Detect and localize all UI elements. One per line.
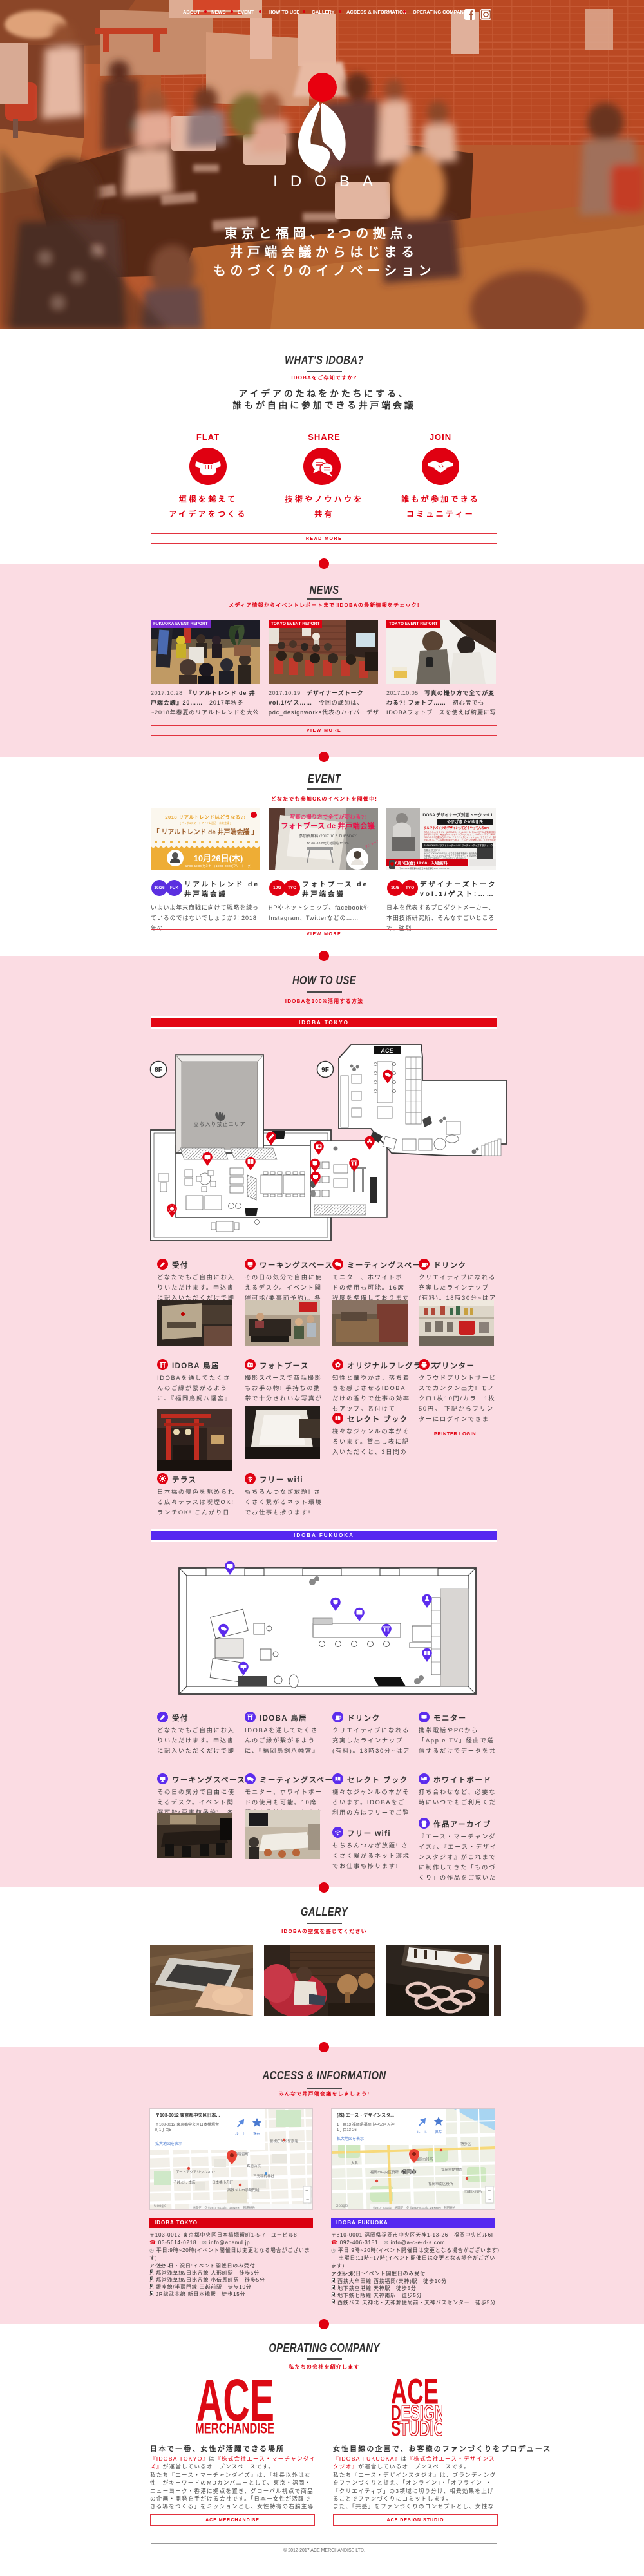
- svg-text:RADWORKS/イラストレーター/ACE マーチャンダイズ: RADWORKS/イラストレーター/ACE マーチャンダイズ本部ディレクター: [424, 844, 496, 847]
- svg-text:1丁目13 福岡県福岡市中央区天神: 1丁目13 福岡県福岡市中央区天神: [337, 2122, 395, 2127]
- svg-text:S: S: [391, 2417, 401, 2437]
- svg-text:西铁メトロ手蔵門綫: 西铁メトロ手蔵門綫: [227, 2188, 260, 2193]
- svg-text:TUDIO: TUDIO: [400, 2417, 442, 2437]
- svg-text:IDOBA デザイナーズ対談トーク vol.1: IDOBA デザイナーズ対談トーク vol.1: [422, 812, 493, 817]
- svg-text:三光稲荷神社: 三光稲荷神社: [253, 2173, 275, 2179]
- svg-text:やまされる、そんな彼の経験から道 ス・ヒんがTCVR途れされ: やまされる、そんな彼の経験から道 ス・ヒんがTCVR途れされこちゃかもの提返など…: [424, 838, 496, 841]
- svg-text:福岡市南区役所: 福岡市南区役所: [428, 2181, 453, 2186]
- svg-text:1丁目13-26: 1丁目13-26: [337, 2128, 357, 2132]
- svg-text:9F: 9F: [321, 1067, 329, 1074]
- svg-text:フォトブース de 井戸端会議: フォトブース de 井戸端会議: [281, 821, 375, 830]
- svg-text:「 リアルトレンド de 井戸端会議 」: 「 リアルトレンド de 井戸端会議 」: [153, 828, 258, 836]
- svg-text:福岡市動物園: 福岡市動物園: [441, 2167, 463, 2172]
- svg-text:地図データ ©2017 Google、ZENRIN 利用規約: 地図データ ©2017 Google、ZENRIN 利用規約: [193, 2206, 255, 2210]
- svg-text:Google: Google: [154, 2204, 167, 2208]
- svg-text:岩藤 武 氏(漫才手: 岩藤 武 氏(漫才手: [424, 848, 440, 852]
- svg-text:MERCHANDISE: MERCHANDISE: [195, 2420, 274, 2436]
- svg-text:立ち入り禁止エリア: 立ち入り禁止エリア: [194, 1121, 246, 1127]
- svg-text:やまざき たかゆき氏: やまざき たかゆき氏: [447, 819, 483, 825]
- svg-text:+: +: [305, 2188, 308, 2194]
- svg-text:〒103-0012 東京都中央区日本...: 〒103-0012 東京都中央区日本...: [155, 2112, 220, 2118]
- svg-text:( パッグ&スマートアイテム週辺・未来会議 ): ( パッグ&スマートアイテム週辺・未来会議 ): [180, 821, 231, 825]
- svg-text:ACE: ACE: [380, 1047, 393, 1054]
- svg-text:拡大地図を表示: 拡大地図を表示: [155, 2141, 182, 2146]
- svg-text:写真の撮り方で全てが変わる?!: 写真の撮り方で全てが変わる?!: [290, 814, 366, 820]
- svg-text:2018 リアルトレンドはどうなる?!: 2018 リアルトレンドはどうなる?!: [165, 814, 245, 820]
- svg-text:+: +: [488, 2188, 491, 2194]
- svg-text:拡大地図を表示: 拡大地図を表示: [337, 2136, 364, 2141]
- svg-text:ルート: ルート: [235, 2132, 246, 2136]
- svg-text:Google: Google: [336, 2204, 348, 2208]
- svg-text:保存: 保存: [253, 2131, 261, 2136]
- svg-text:日本橋小舟町: 日本橋小舟町: [212, 2180, 234, 2185]
- svg-text:−: −: [306, 2196, 309, 2202]
- svg-text:8F: 8F: [155, 1067, 162, 1074]
- svg-text:ルート: ルート: [417, 2131, 428, 2135]
- svg-text:10月6日(金) 19:00~ 入場無料: 10月6日(金) 19:00~ 入場無料: [393, 860, 448, 866]
- svg-text:−: −: [488, 2196, 491, 2202]
- svg-text:©2017 Google・地図データ ©2017 Googl: ©2017 Google・地図データ ©2017 Google, ZENRIN …: [373, 2206, 456, 2210]
- svg-text:福岡市: 福岡市: [401, 2168, 417, 2175]
- svg-text:10月26日(木): 10月26日(木): [194, 854, 243, 863]
- svg-text:(株) エース・デザインスタ...: (株) エース・デザインスタ...: [337, 2112, 394, 2118]
- svg-text:大名: 大名: [351, 2161, 358, 2166]
- svg-text:クルマやバイクのデザインってどうやってんの8??: クルマやバイクのデザインってどうやってんの8??: [424, 826, 489, 830]
- svg-text:〒103-0012 東京都中央区日本橋堀留町 1-5-7 Y: 〒103-0012 東京都中央区日本橋堀留町 1-5-7 YOU ICL 8F: [399, 866, 450, 870]
- svg-text:市南区役所: 市南区役所: [464, 2189, 482, 2194]
- svg-text:アートアクアリウム2017: アートアクアリウム2017: [176, 2170, 215, 2175]
- svg-text:玄冶店浜: 玄冶店浜: [247, 2163, 261, 2168]
- svg-text:福岡市中央区役所: 福岡市中央区役所: [370, 2170, 399, 2175]
- svg-text:参加費無料 /2017.10.3 TUESDAY: 参加費無料 /2017.10.3 TUESDAY: [299, 834, 357, 839]
- svg-text:町1丁目5: 町1丁目5: [155, 2128, 171, 2132]
- svg-text:16:00~18:00(受付開始 15:30): 16:00~18:00(受付開始 15:30): [307, 841, 349, 846]
- svg-text:〒103-0012 東京都中央区日本橋堀留: 〒103-0012 東京都中央区日本橋堀留: [155, 2122, 219, 2127]
- svg-text:博多区: 博多区: [460, 2141, 471, 2146]
- svg-text:保存: 保存: [435, 2130, 442, 2135]
- svg-text:そばよし 本店: そばよし 本店: [173, 2180, 196, 2185]
